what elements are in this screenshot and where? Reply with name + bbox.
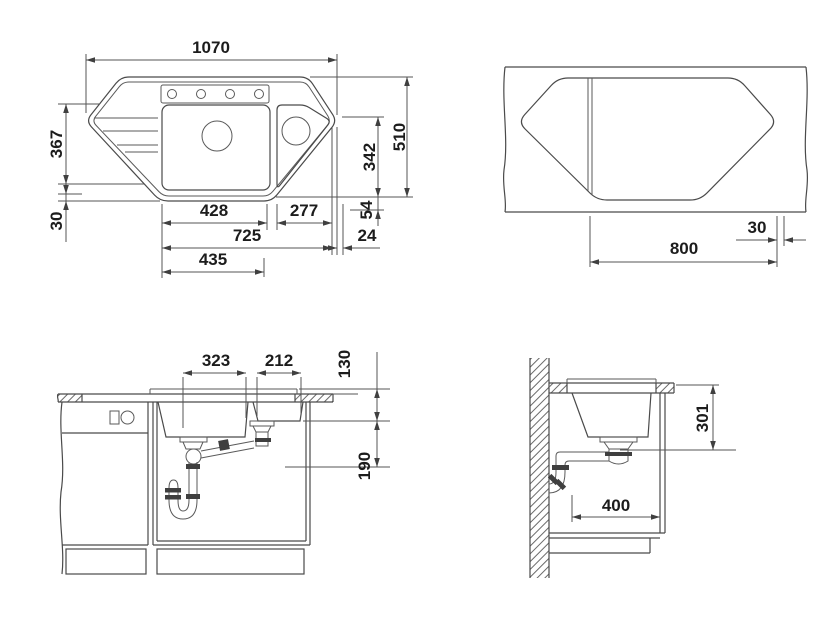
sink-outline-inner bbox=[94, 82, 329, 196]
dim-bowl-depth: 301 bbox=[693, 404, 712, 432]
sink-top-view: 1070 367 30 510 342 54 428 277 725 24 43… bbox=[47, 38, 413, 278]
worktop-panel bbox=[504, 67, 808, 212]
sink-outline-outer bbox=[89, 77, 335, 201]
dim-cutout-width: 800 bbox=[670, 239, 698, 258]
cutout-fold-line bbox=[588, 78, 592, 195]
technical-drawing: 1070 367 30 510 342 54 428 277 725 24 43… bbox=[0, 0, 829, 630]
tap-ledge bbox=[161, 85, 269, 103]
side-bowl-drain bbox=[282, 117, 310, 145]
dim-overall-depth: 510 bbox=[390, 123, 409, 151]
side-bowl bbox=[277, 105, 329, 187]
main-bowl bbox=[162, 105, 270, 190]
side-bowl-section bbox=[572, 393, 651, 437]
dim-inner-depth: 342 bbox=[360, 143, 379, 171]
dim-bottom-offset: 54 bbox=[357, 200, 376, 219]
side-worktop-hatch-right bbox=[656, 383, 674, 393]
side-view: 301 400 bbox=[530, 358, 736, 578]
dim-left-depth: 367 bbox=[47, 130, 66, 158]
cutout-outline bbox=[521, 78, 773, 200]
cutout-view: 800 30 bbox=[504, 67, 808, 267]
dim-side-bowl-depth: 130 bbox=[335, 350, 354, 378]
front-plumbing bbox=[169, 421, 274, 519]
side-worktop bbox=[549, 383, 674, 393]
dim-inner-width: 725 bbox=[233, 226, 261, 245]
side-worktop-hatch-left bbox=[549, 383, 567, 393]
dim-left-offset: 30 bbox=[47, 212, 66, 231]
tap-holes bbox=[168, 90, 264, 99]
dishwasher-unit bbox=[60, 402, 148, 574]
side-pipe-couplings bbox=[548, 452, 632, 490]
front-bowls bbox=[158, 402, 303, 437]
pipe-couplings bbox=[165, 438, 271, 500]
dim-front-main-bowl: 323 bbox=[202, 351, 230, 370]
worktop-hatch-left bbox=[58, 394, 82, 402]
front-arrowheads bbox=[183, 370, 380, 467]
side-dimension-lines bbox=[572, 385, 713, 517]
dim-lower-width: 435 bbox=[199, 250, 227, 269]
main-bowl-drain bbox=[202, 121, 232, 151]
sink-cabinet bbox=[66, 402, 310, 574]
wall-hatch bbox=[530, 358, 549, 578]
dim-side-bowl-width: 277 bbox=[290, 201, 318, 220]
dim-corner-offset: 24 bbox=[358, 226, 377, 245]
dim-main-bowl-width: 428 bbox=[200, 201, 228, 220]
dim-front-side-bowl: 212 bbox=[265, 351, 293, 370]
dim-drain-distance: 400 bbox=[602, 496, 630, 515]
dim-drain-height: 190 bbox=[355, 452, 374, 480]
side-cabinet bbox=[549, 393, 665, 553]
technical-drawing-page: 1070 367 30 510 342 54 428 277 725 24 43… bbox=[0, 0, 829, 630]
dim-overall-width: 1070 bbox=[192, 38, 230, 57]
front-view: 323 212 130 190 bbox=[58, 350, 390, 574]
sink-rim bbox=[150, 389, 297, 394]
worktop-front bbox=[58, 394, 333, 402]
drainboard-grooves bbox=[94, 118, 158, 152]
dim-cutout-edge-offset: 30 bbox=[748, 218, 767, 237]
